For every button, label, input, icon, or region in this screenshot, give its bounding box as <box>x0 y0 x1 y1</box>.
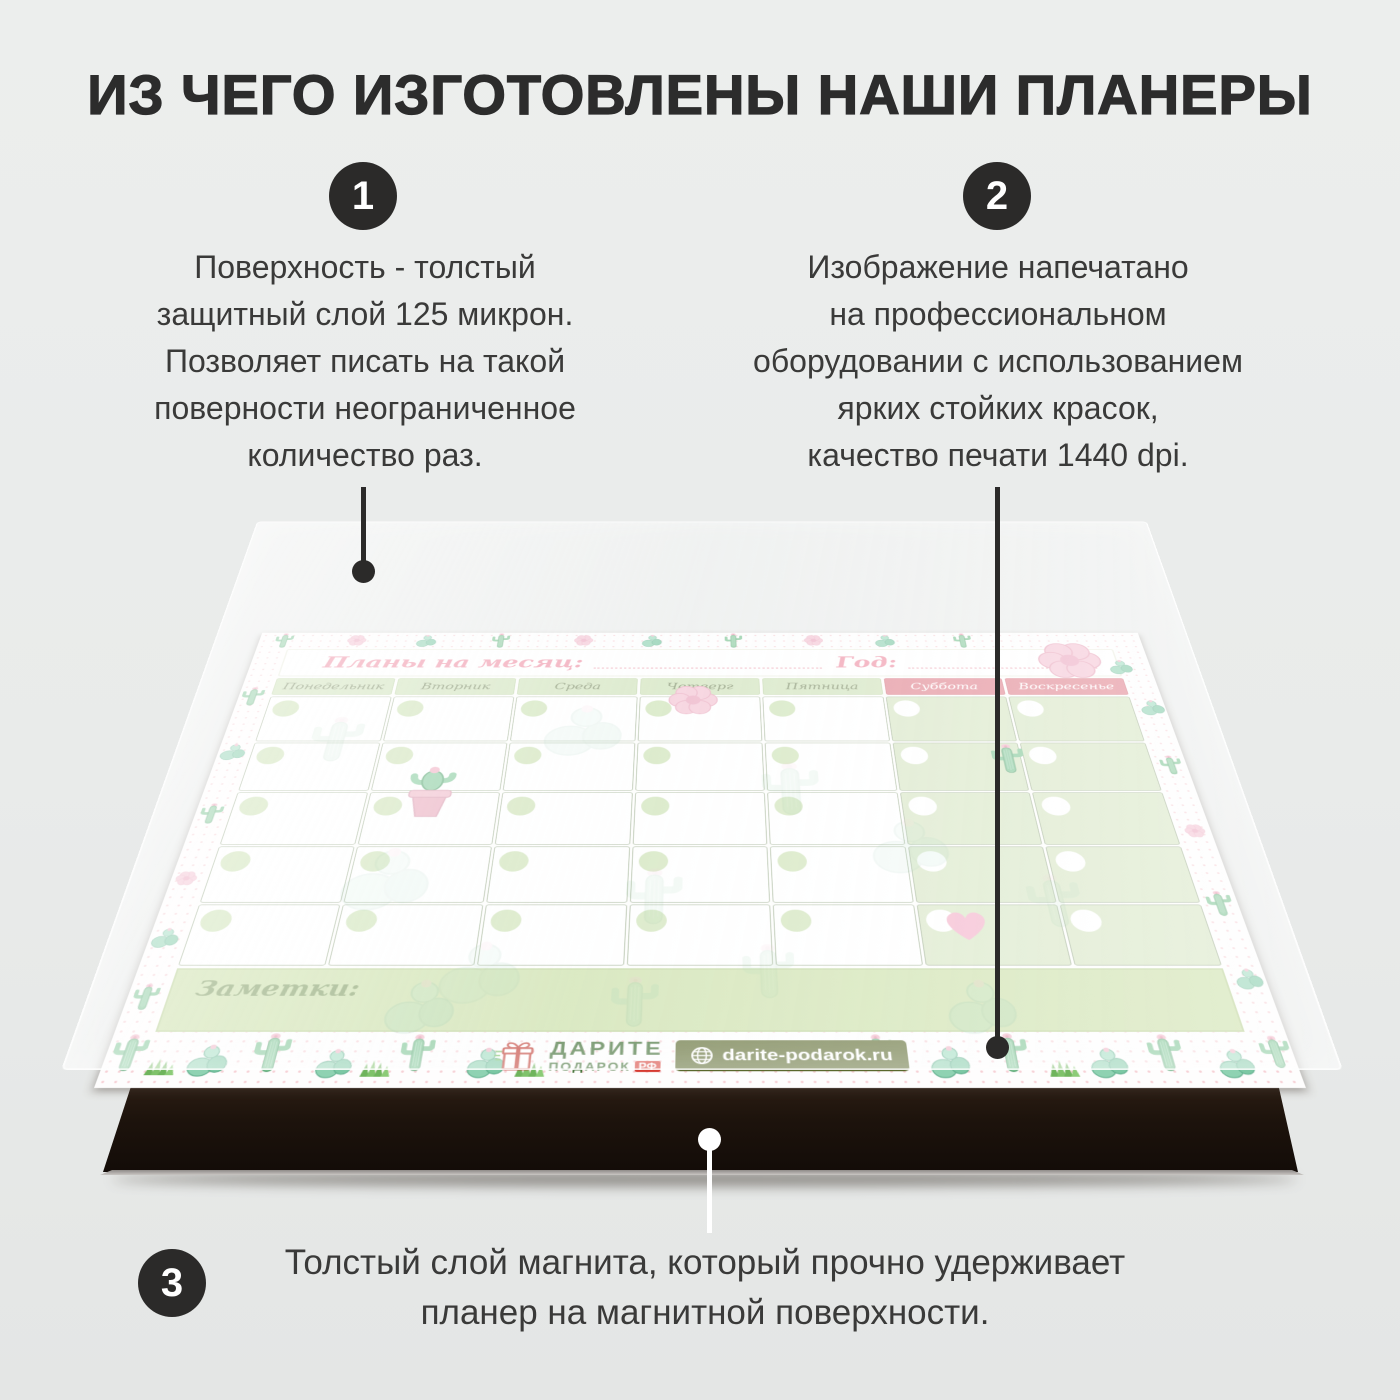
step-3-text: Толстый слой магнита, который прочно уде… <box>205 1238 1205 1338</box>
step-2-line: ярких стойких красок, <box>688 385 1308 432</box>
step-2-number: 2 <box>986 174 1008 219</box>
infographic-canvas: ИЗ ЧЕГО ИЗГОТОВЛЕНЫ НАШИ ПЛАНЕРЫ 1 2 Пов… <box>0 0 1400 1400</box>
step-1-connector-line <box>361 487 366 563</box>
step-2-line: на профессиональном <box>688 291 1308 338</box>
step-2-line: оборудовании с использованием <box>688 338 1308 385</box>
step-3-line: Толстый слой магнита, который прочно уде… <box>205 1238 1205 1288</box>
step-1-number: 1 <box>352 174 374 219</box>
step-1-text: Поверхность - толстый защитный слой 125 … <box>60 244 670 479</box>
page-title: ИЗ ЧЕГО ИЗГОТОВЛЕНЫ НАШИ ПЛАНЕРЫ <box>0 62 1400 127</box>
step-2-text: Изображение напечатано на профессиональн… <box>688 244 1308 479</box>
magnet-layer <box>103 1077 1298 1172</box>
step-2-badge: 2 <box>963 162 1031 230</box>
protective-film-layer <box>61 522 1343 1070</box>
step-2-connector-line <box>995 487 1000 1039</box>
step-1-line: защитный слой 125 микрон. <box>60 291 670 338</box>
step-1-line: Позволяет писать на такой <box>60 338 670 385</box>
step-3-badge: 3 <box>138 1249 206 1317</box>
film-3d-wrapper <box>61 523 1339 1070</box>
step-1-line: Поверхность - толстый <box>60 244 670 291</box>
step-2-line: Изображение напечатано <box>688 244 1308 291</box>
step-2-connector-dot <box>986 1036 1009 1059</box>
magnet-bottom-edge <box>100 1170 1304 1175</box>
step-1-badge: 1 <box>329 162 397 230</box>
step-3-number: 3 <box>161 1261 183 1306</box>
step-3-connector-line <box>707 1149 712 1233</box>
step-2-line: качество печати 1440 dpi. <box>688 432 1308 479</box>
step-3-connector-dot <box>698 1128 721 1151</box>
step-1-line: поверности неограниченное <box>60 385 670 432</box>
step-1-connector-dot <box>352 560 375 583</box>
step-1-line: количество раз. <box>60 432 670 479</box>
step-3-line: планер на магнитной поверхности. <box>205 1288 1205 1338</box>
